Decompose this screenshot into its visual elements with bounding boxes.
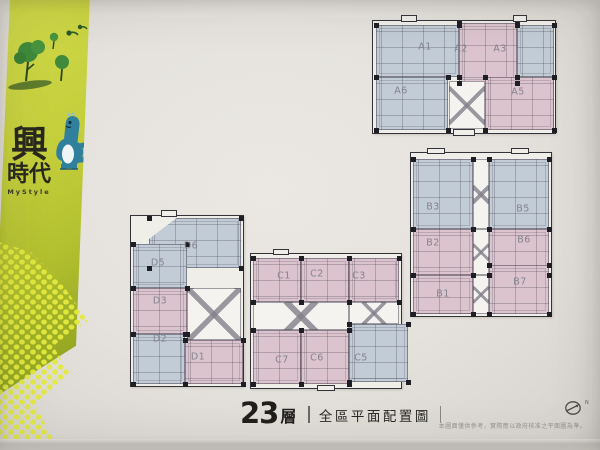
unit-label-D6: D6 — [184, 241, 198, 252]
column-marker — [347, 256, 352, 261]
column-marker — [239, 266, 244, 271]
column-marker — [446, 75, 451, 80]
stair-elevator-core — [449, 81, 485, 129]
unit-label-C6: C6 — [310, 353, 324, 364]
column-marker — [183, 338, 188, 343]
building-A: A1A2A3A6A5 — [372, 20, 556, 134]
compass-north-label: N — [585, 400, 589, 406]
column-marker — [131, 286, 136, 291]
balcony-bump — [513, 15, 527, 22]
page-edge-shadow — [0, 439, 600, 450]
unit-label-B7: B7 — [513, 277, 527, 288]
stair-elevator-core — [253, 302, 349, 330]
column-marker — [131, 332, 136, 337]
unit-label-B6: B6 — [517, 235, 531, 246]
column-marker — [515, 81, 520, 86]
column-marker — [487, 157, 492, 162]
unit-A5 — [485, 77, 554, 130]
balcony-bump — [317, 385, 335, 391]
unit-label-C7: C7 — [275, 355, 289, 366]
column-marker — [487, 273, 492, 278]
disclaimer-text: 本圖面僅供參考，實際應以政府核准之平面圖為準。 — [439, 421, 586, 430]
north-compass-icon — [563, 399, 585, 417]
column-marker — [515, 75, 520, 80]
column-marker — [552, 128, 557, 133]
column-marker — [299, 328, 304, 333]
caption-divider — [440, 406, 441, 423]
caption: 23 層 全區平面配置圖 — [240, 397, 450, 429]
column-marker — [131, 382, 136, 387]
column-marker — [406, 322, 411, 327]
column-marker — [347, 380, 352, 385]
column-marker — [185, 286, 190, 291]
column-marker — [457, 81, 462, 86]
unit-label-A5: A5 — [511, 87, 525, 98]
unit-A3 — [517, 25, 554, 77]
unit-label-C3: C3 — [352, 271, 366, 282]
column-marker — [487, 227, 492, 232]
unit-B2 — [413, 229, 473, 275]
column-marker — [471, 273, 476, 278]
unit-B7 — [489, 265, 549, 314]
building-C: C1C2C3C7C6C5 — [250, 253, 402, 389]
balcony-bump — [401, 15, 417, 22]
unit-B5 — [489, 159, 549, 229]
unit-label-D2: D2 — [153, 334, 167, 345]
column-marker — [547, 273, 552, 278]
column-marker — [547, 227, 552, 232]
column-marker — [299, 382, 304, 387]
column-marker — [251, 382, 256, 387]
unit-label-C5: C5 — [354, 353, 368, 364]
floor-suffix: 層 — [280, 403, 296, 427]
balcony-bump — [273, 249, 289, 255]
column-marker — [299, 300, 304, 305]
stair-elevator-core — [349, 302, 399, 324]
unit-label-A1: A1 — [418, 42, 432, 53]
column-marker — [239, 216, 244, 221]
column-marker — [251, 328, 256, 333]
caption-title: 全區平面配置圖 — [319, 405, 431, 425]
column-marker — [241, 382, 246, 387]
column-marker — [547, 263, 552, 268]
unit-C2 — [301, 258, 349, 302]
column-marker — [487, 312, 492, 317]
balcony-bump — [453, 129, 475, 136]
stair-elevator-core — [473, 275, 489, 314]
column-marker — [347, 322, 352, 327]
column-marker — [374, 75, 379, 80]
column-marker — [471, 312, 476, 317]
column-marker — [397, 300, 402, 305]
column-marker — [347, 300, 352, 305]
unit-label-B2: B2 — [426, 238, 440, 249]
unit-label-B5: B5 — [516, 204, 530, 215]
balcony-bump — [161, 210, 177, 217]
unit-label-D1: D1 — [191, 352, 205, 363]
column-marker — [446, 128, 451, 133]
unit-label-C2: C2 — [310, 269, 324, 280]
column-marker — [347, 328, 352, 333]
unit-B3 — [413, 159, 473, 229]
column-marker — [406, 380, 411, 385]
unit-label-B1: B1 — [436, 289, 450, 300]
column-marker — [251, 300, 256, 305]
column-marker — [147, 216, 152, 221]
column-marker — [552, 75, 557, 80]
stair-elevator-core — [187, 288, 241, 340]
column-marker — [471, 157, 476, 162]
stair-elevator-core — [473, 229, 489, 275]
column-marker — [411, 273, 416, 278]
column-marker — [411, 312, 416, 317]
unit-label-D5: D5 — [151, 258, 165, 269]
column-marker — [483, 128, 488, 133]
column-marker — [552, 23, 557, 28]
balcony-bump — [427, 148, 445, 154]
balcony-bump — [511, 148, 529, 154]
building-B: B3B5B2B6B1B7 — [410, 152, 552, 317]
column-marker — [251, 256, 256, 261]
column-marker — [471, 227, 476, 232]
building-D: D6D5D3D2D1 — [130, 215, 244, 387]
unit-label-D3: D3 — [153, 296, 167, 307]
brochure-photo: 興 時代 MyStyle A1A2A3A6A5B3B5B2B6B1B7C1C2C… — [0, 0, 600, 450]
unit-C6 — [301, 330, 349, 384]
caption-divider — [308, 406, 310, 423]
floor-number: 23 — [240, 396, 278, 430]
unit-label-A2: A2 — [454, 44, 468, 55]
unit-A6 — [376, 77, 448, 130]
unit-label-A6: A6 — [394, 86, 408, 97]
unit-label-A3: A3 — [493, 44, 507, 55]
column-marker — [457, 75, 462, 80]
column-marker — [487, 263, 492, 268]
column-marker — [547, 312, 552, 317]
column-marker — [547, 157, 552, 162]
column-marker — [483, 75, 488, 80]
column-marker — [299, 256, 304, 261]
column-marker — [183, 382, 188, 387]
unit-label-B3: B3 — [426, 202, 440, 213]
column-marker — [457, 21, 462, 26]
column-marker — [397, 256, 402, 261]
column-marker — [183, 332, 188, 337]
column-marker — [411, 227, 416, 232]
column-marker — [374, 128, 379, 133]
column-marker — [131, 242, 136, 247]
column-marker — [374, 23, 379, 28]
stair-elevator-core — [473, 159, 489, 229]
unit-label-C1: C1 — [277, 271, 291, 282]
column-marker — [411, 157, 416, 162]
column-marker — [241, 338, 246, 343]
floor-plans: A1A2A3A6A5B3B5B2B6B1B7C1C2C3C7C6C5D6D5D3… — [0, 0, 600, 450]
column-marker — [515, 23, 520, 28]
